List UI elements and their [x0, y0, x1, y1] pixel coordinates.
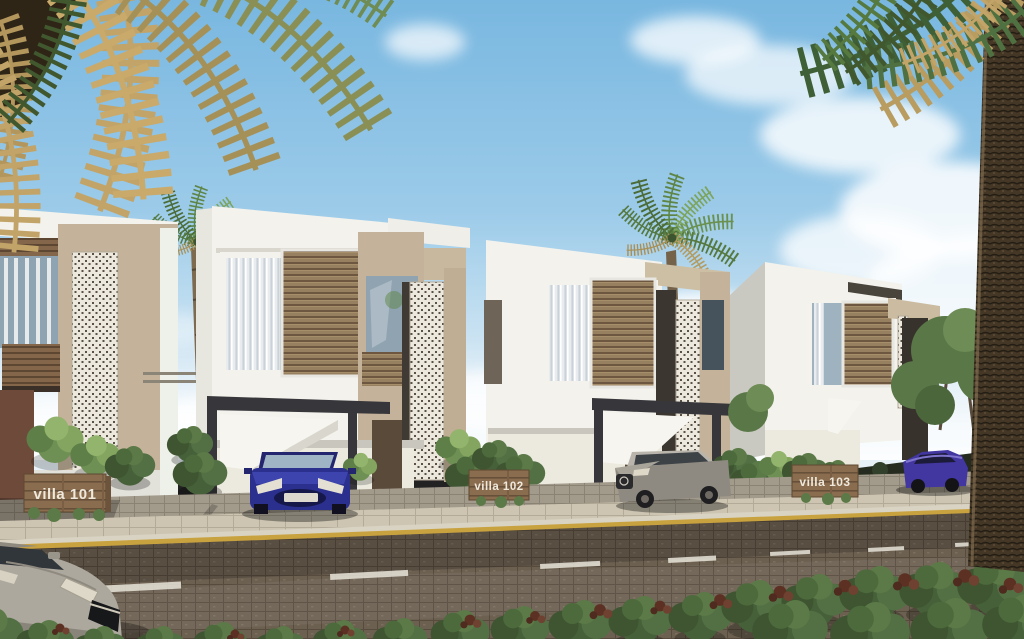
glass-window: [702, 300, 724, 370]
license-plate: [284, 493, 318, 502]
villa-street-render: villa 101 villa 102 villa 103: [0, 0, 1024, 639]
side-window: [484, 300, 502, 384]
main-window: [544, 279, 658, 387]
villa-sign-103-label: villa 103: [799, 475, 850, 489]
main-window: [220, 250, 362, 376]
curtains: [549, 285, 591, 381]
wood-shutter: [843, 302, 893, 386]
curtains: [814, 303, 824, 385]
wood-balcony: [2, 344, 60, 386]
villa-sign-102-label: villa 102: [474, 481, 523, 493]
wood-shutter: [282, 250, 362, 376]
villa-sign-102: villa 102: [469, 470, 529, 508]
curtains: [226, 258, 280, 370]
main-window: [808, 298, 896, 390]
wood-shutter: [591, 279, 655, 387]
villa-sign-103: villa 103: [792, 465, 858, 505]
villa-sign-101-label: villa 101: [34, 486, 97, 503]
